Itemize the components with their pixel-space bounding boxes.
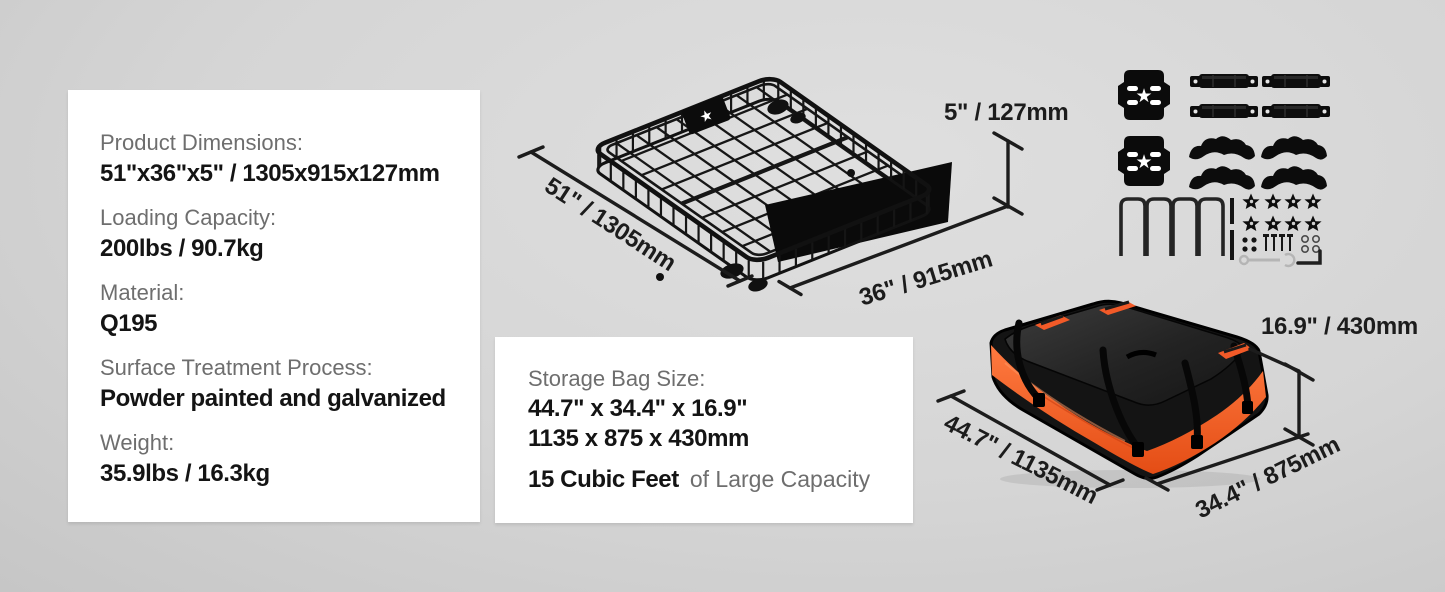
- wrench: [1240, 254, 1294, 266]
- star-knob: [1242, 216, 1259, 232]
- strap-bracket: [1262, 104, 1330, 118]
- u-bolt: [1199, 199, 1223, 256]
- star-knob: [1264, 216, 1281, 232]
- spec-value: 51"x36"x5" / 1305x915x127mm: [100, 158, 454, 189]
- spec-value: 200lbs / 90.7kg: [100, 233, 454, 264]
- rail-clamp: [1261, 166, 1327, 189]
- rail-clamp: [1261, 136, 1327, 159]
- strap-bracket: [1190, 104, 1258, 118]
- spec-label: Weight:: [100, 428, 454, 458]
- spec-label: Surface Treatment Process:: [100, 353, 454, 383]
- star-knob: [1284, 194, 1301, 210]
- nuts: [1242, 237, 1256, 251]
- washers: [1302, 236, 1319, 252]
- spec-label: Material:: [100, 278, 454, 308]
- spec-loading-capacity: Loading Capacity: 200lbs / 90.7kg: [100, 203, 454, 264]
- spec-label: Product Dimensions:: [100, 128, 454, 158]
- star-knob: [1304, 216, 1321, 232]
- capacity-suffix: of Large Capacity: [690, 466, 870, 492]
- bag-size-inches: 44.7" x 34.4" x 16.9": [528, 394, 895, 424]
- spec-value: Q195: [100, 308, 454, 339]
- threaded-rod: [1230, 198, 1234, 224]
- spec-label: Loading Capacity:: [100, 203, 454, 233]
- spec-weight: Weight: 35.9lbs / 16.3kg: [100, 428, 454, 489]
- bag-card-title: Storage Bag Size:: [528, 364, 895, 394]
- rail-clamp: [1189, 136, 1255, 159]
- spec-value: Powder painted and galvanized: [100, 383, 454, 414]
- u-bolt: [1147, 199, 1171, 256]
- screws: [1263, 234, 1293, 251]
- spec-surface-treatment: Surface Treatment Process: Powder painte…: [100, 353, 454, 414]
- bag-height-dimension: 16.9" / 430mm: [1261, 313, 1418, 341]
- rail-clamp: [1189, 166, 1255, 189]
- spec-value: 35.9lbs / 16.3kg: [100, 458, 454, 489]
- spec-material: Material: Q195: [100, 278, 454, 339]
- star-knob: [1304, 194, 1321, 210]
- star-knob: [1264, 194, 1281, 210]
- storage-bag-card: Storage Bag Size: 44.7" x 34.4" x 16.9" …: [495, 337, 913, 523]
- spec-product-dimensions: Product Dimensions: 51"x36"x5" / 1305x91…: [100, 128, 454, 189]
- bag-capacity-line: 15 Cubic Feetof Large Capacity: [528, 464, 895, 495]
- star-knob: [1284, 216, 1301, 232]
- capacity-value: 15 Cubic Feet: [528, 466, 679, 493]
- strap-bracket: [1262, 74, 1330, 88]
- u-bolt: [1121, 199, 1145, 256]
- mounting-hardware-kit: ★: [1108, 58, 1343, 273]
- star-knob: [1242, 194, 1259, 210]
- mounting-plate: [1118, 136, 1170, 186]
- threaded-rod: [1230, 230, 1234, 260]
- product-infographic-canvas: Product Dimensions: 51"x36"x5" / 1305x91…: [0, 0, 1445, 592]
- basket-height-dimension: 5" / 127mm: [944, 99, 1068, 127]
- strap-bracket: [1190, 74, 1258, 88]
- product-spec-card: Product Dimensions: 51"x36"x5" / 1305x91…: [68, 90, 480, 522]
- bag-size-mm: 1135 x 875 x 430mm: [528, 424, 895, 454]
- u-bolt: [1173, 199, 1197, 256]
- mounting-plate: [1118, 70, 1170, 120]
